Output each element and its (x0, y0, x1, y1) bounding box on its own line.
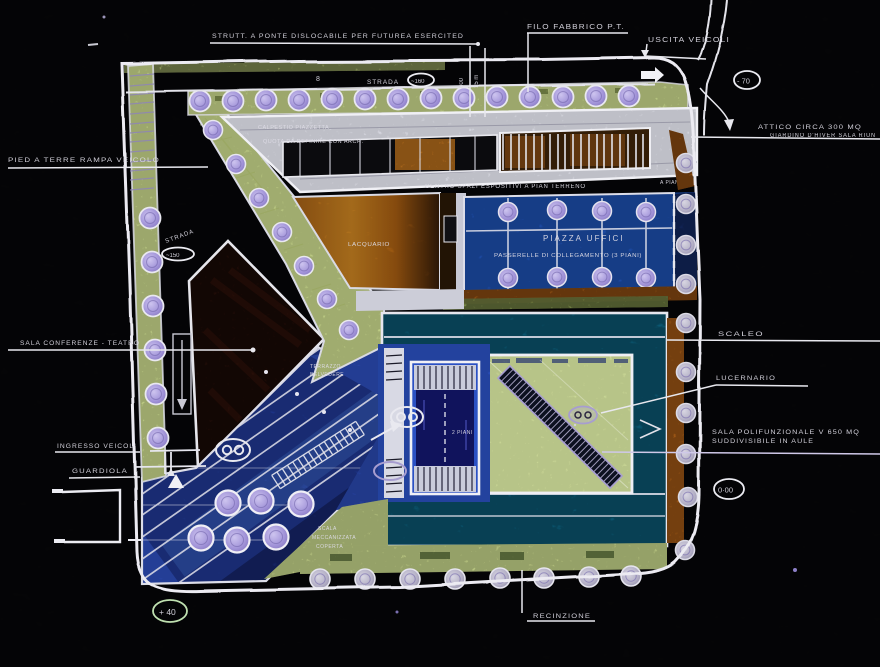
svg-text:CENTRO SPAZI ESPOSITIVI A: CENTRO SPAZI ESPOSITIVI A PIAN TERRENO (425, 184, 586, 190)
svg-text:BELVEDERE: BELVEDERE (310, 372, 344, 378)
svg-text:TERRAZZO: TERRAZZO (310, 364, 341, 370)
svg-text:SCALA: SCALA (318, 526, 337, 532)
svg-text:PIED A TERRE RAMPA VEICOLO: PIED A TERRE RAMPA VEICOLO (8, 157, 160, 164)
svg-text:- 70: - 70 (737, 77, 750, 86)
svg-text:~150: ~150 (166, 253, 180, 259)
svg-text:COPERTA: COPERTA (316, 544, 343, 550)
svg-text:LUCERNARIO: LUCERNARIO (716, 375, 776, 382)
svg-text:QUOTA DA DEFINIRE CON ARCH: QUOTA DA DEFINIRE CON ARCH. (263, 139, 364, 145)
svg-text:MECCANIZZATA: MECCANIZZATA (312, 535, 356, 541)
svg-text:PIAZZA UFFICI: PIAZZA UFFICI (543, 234, 625, 243)
svg-text:FILO FABBRICO P.T.: FILO FABBRICO P.T. (527, 24, 625, 31)
svg-text:CALPESTIO PIAZZETTA: CALPESTIO PIAZZETTA (258, 125, 329, 131)
svg-text:~160: ~160 (411, 79, 425, 85)
svg-text:8: 8 (316, 76, 321, 83)
svg-text:SALA POLIFUNZIONALE V 650 MQ: SALA POLIFUNZIONALE V 650 MQ (712, 429, 860, 436)
svg-text:RECINZIONE: RECINZIONE (533, 613, 591, 620)
svg-text:PASSERELLE DI COLLEGAMENTO (3: PASSERELLE DI COLLEGAMENTO (3 PIANI) (494, 253, 642, 259)
svg-text:INGRESSO VEICOLI: INGRESSO VEICOLI (57, 443, 137, 450)
svg-text:STRUTT. A PONTE DISLOCABILE PE: STRUTT. A PONTE DISLOCABILE PER FUTUREA … (212, 33, 464, 40)
svg-text:15 m: 15 m (474, 75, 480, 88)
svg-text:STRADA: STRADA (367, 79, 399, 86)
svg-text:USCITA VEICOLI: USCITA VEICOLI (648, 37, 730, 44)
svg-text:SCALEO: SCALEO (718, 331, 764, 338)
svg-text:SALA CONFERENZE - TEATRO: SALA CONFERENZE - TEATRO (20, 340, 140, 347)
svg-text:GIARDINO D'HIVER SALA RIUN: GIARDINO D'HIVER SALA RIUN (770, 133, 876, 139)
svg-text:0·00: 0·00 (718, 486, 733, 495)
svg-text:+ 40: + 40 (159, 607, 176, 617)
svg-text:SUDDIVISIBILE IN AULE: SUDDIVISIBILE IN AULE (712, 438, 814, 445)
svg-text:600: 600 (459, 77, 465, 88)
svg-text:LACQUARIO: LACQUARIO (348, 242, 390, 248)
svg-text:2 PIANI: 2 PIANI (452, 430, 473, 436)
svg-text:GUARDIOLA: GUARDIOLA (72, 468, 128, 475)
svg-text:ATTICO CIRCA 300 MQ: ATTICO CIRCA 300 MQ (758, 124, 862, 131)
